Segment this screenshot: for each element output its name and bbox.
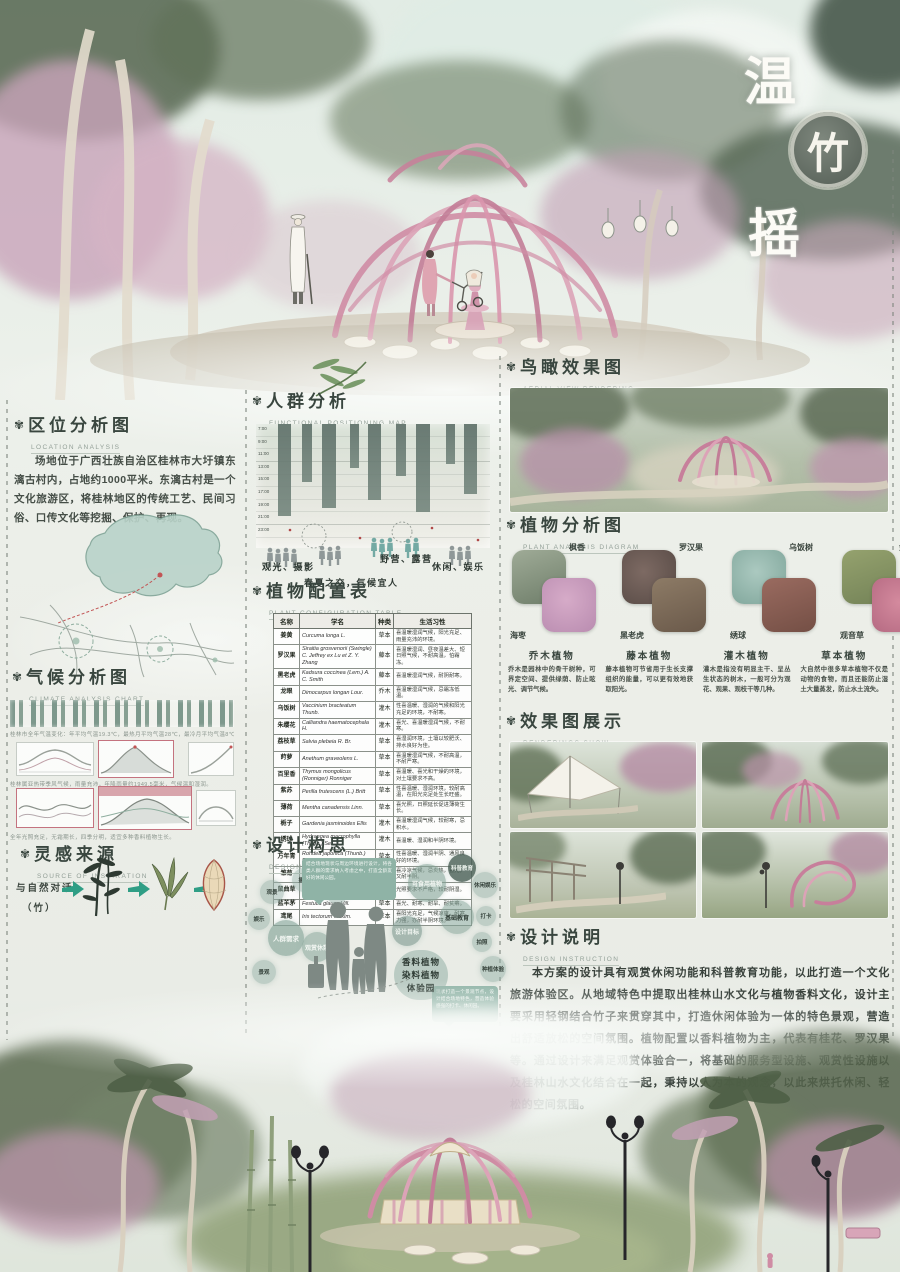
crowd-time-label: 15:00	[258, 476, 269, 489]
description-title: 设计说明	[520, 928, 604, 947]
crowd-title: 人群分析	[266, 392, 350, 411]
plant-latin-name: Siraitia grosvenorii (Swingle) C. Jeffre…	[300, 645, 376, 669]
concept-bubble: 娱乐	[248, 908, 270, 930]
crowd-time-label: 9:00	[258, 439, 269, 452]
plant-table-row: 黑老虎 Kadsura coccinea (Lem.) A. C. Smith …	[274, 668, 472, 685]
plant-category: 灌木植物 灌木是指没有明显主干、呈丛生状态的树木，一般可分为观花、观果、观枝干等…	[703, 648, 791, 694]
plant-latin-name: Perilla frutescens (L.) Britt	[300, 784, 376, 800]
plant-table-row: 龙眼 Dimocarpus longan Lour. 乔木 喜温暖湿润气候，忌霜…	[274, 685, 472, 701]
plant-photo	[872, 578, 900, 632]
concept-bubble: 种植体验	[480, 956, 506, 982]
plant-latin-name: Calliandra haematocephala H.	[300, 718, 376, 735]
street-lamp	[292, 1146, 329, 1272]
aerial-view-image	[510, 388, 888, 512]
plant-pair: 枫香 海枣	[512, 540, 600, 640]
plant-thumbnails: 枫香 海枣 罗汉果 黑老虎 乌饭树 绣球 金鸡菊 观音草	[512, 540, 900, 640]
plant-type: 草本	[376, 629, 394, 645]
plant-category-name: 乔木植物	[508, 648, 596, 662]
concept-family-silhouette	[304, 894, 434, 1004]
plant-habit: 喜湿润环境，土壤以较肥沃、排水良好为佳。	[394, 735, 472, 751]
plant-category-desc: 大自然中很多草本植物不仅是动物的食物，而且还能防止湿土大量蒸发，防止水土流失。	[801, 665, 889, 694]
plant-type: 草本	[376, 735, 394, 751]
inspiration-shell	[196, 858, 232, 914]
concept-bubble: 科普教育	[448, 854, 476, 882]
concept-bubble: 拍照	[472, 932, 492, 952]
climate-chart-precip	[98, 740, 174, 778]
plant-type: 灌木	[376, 701, 394, 718]
plant-latin-name: Anethum graveolens L.	[300, 751, 376, 767]
aerial-title: 鸟瞰效果图	[520, 358, 625, 377]
plant-habit: 性喜温暖、湿润环境，较耐高温，在阳光充足处生长旺盛。	[394, 784, 472, 800]
climate-chart-wind	[16, 788, 94, 828]
plant-table-title: 植物配置表	[266, 582, 371, 601]
plant-habit: 性喜温暖、湿润的气候和阳光充足的环境，不耐寒。	[394, 701, 472, 718]
plant-type: 乔木	[376, 685, 394, 701]
street-lamp	[812, 1156, 831, 1272]
plant-habit: 喜温暖湿润气候，阳光充足、雨量充沛的环境。	[394, 629, 472, 645]
climate-chart-bridge	[196, 790, 236, 826]
climate-chart-temp	[16, 742, 94, 776]
plant-name: 百里香	[274, 767, 300, 784]
plant-type: 藤本	[376, 668, 394, 685]
col-header-latin: 学名	[300, 614, 376, 629]
plant-name: 朱缨花	[274, 718, 300, 735]
poster-title-char-badge: 竹	[807, 120, 849, 181]
col-header-habit: 生活习性	[394, 614, 472, 629]
climate-chart-sun	[188, 742, 234, 776]
poster-title-char-top: 温	[744, 40, 796, 115]
plant-category: 草本植物 大自然中很多草本植物不仅是动物的食物，而且还能防止湿土大量蒸发，防止水…	[801, 648, 889, 694]
plant-label-top: 枫香	[569, 542, 585, 553]
plant-table-row: 姜黄 Curcuma longa L. 草本 喜温暖湿润气候，阳光充足、雨量充沛…	[274, 629, 472, 645]
plant-table-row: 朱缨花 Calliandra haematocephala H. 灌木 喜光、喜…	[274, 718, 472, 735]
hero-bottom-rendering	[0, 1020, 900, 1272]
concept-title: 设计构思	[266, 836, 350, 855]
plant-type: 灌木	[376, 718, 394, 735]
bottom-scene	[0, 1020, 900, 1272]
plant-categories: 乔木植物 乔木是园林中的骨干树种，可界定空间、提供绿荫、防止眩光、调节气候。 藤…	[508, 648, 888, 694]
plant-latin-name: Salvia plebeia R. Br.	[300, 735, 376, 751]
plant-habit: 喜温暖、湿润和半阴环境。	[394, 833, 472, 850]
section-description-header: ✾设计说明 DESIGN INSTRUCTION	[506, 928, 619, 967]
concept-bubble: 景观	[252, 960, 276, 984]
plant-name: 罗汉果	[274, 645, 300, 669]
plant-table-row: 百里香 Thymus mongolicus (Ronniger) Ronnige…	[274, 767, 472, 784]
location-title: 区位分析图	[28, 416, 133, 435]
plant-latin-name: Dimocarpus longan Lour.	[300, 685, 376, 701]
plant-habit: 喜温暖湿润气候，不耐高温，不耐严寒。	[394, 751, 472, 767]
plant-label-bottom: 观音草	[840, 630, 864, 641]
plant-category-desc: 藤本植物可节省用于生长支撑组织的能量，可以更有效地获取阳光。	[606, 665, 694, 694]
crowd-diagram: 7:009:0011:0013:0015:0017:0019:0021:0023…	[256, 424, 490, 548]
concept-bubble: 打卡	[476, 906, 496, 926]
plant-name: 龙眼	[274, 685, 300, 701]
climate-chart-humidity	[98, 786, 192, 830]
plant-name: 莳萝	[274, 751, 300, 767]
plant-name: 薄荷	[274, 800, 300, 816]
concept-bubble: 观景	[260, 880, 284, 904]
climate-title: 气候分析图	[26, 668, 131, 687]
plant-habit: 喜温暖、喜光和干燥的环境，对土壤要求不高。	[394, 767, 472, 784]
plant-latin-name: Curcuma longa L.	[300, 629, 376, 645]
plant-analysis-title: 植物分析图	[520, 516, 625, 535]
plant-habit: 喜温暖湿润气候，忌霜冻低温。	[394, 685, 472, 701]
poster-title-badge: 竹	[790, 112, 866, 188]
plant-category-desc: 乔木是园林中的骨干树种，可界定空间、提供绿荫、防止眩光、调节气候。	[508, 665, 596, 694]
crowd-activity-label: 野营、露营	[380, 552, 433, 565]
climate-barcode-strip	[10, 700, 234, 727]
flower-icon: ✾	[252, 838, 262, 852]
flower-icon: ✾	[506, 930, 516, 944]
plant-latin-name: Thymus mongolicus (Ronniger) Ronniger	[300, 767, 376, 784]
flower-icon: ✾	[12, 670, 22, 684]
plant-latin-name: Gardenia jasminoides Ellis	[300, 816, 376, 832]
street-lamp	[607, 1116, 644, 1260]
plant-name: 姜黄	[274, 629, 300, 645]
location-maps	[10, 505, 238, 680]
plant-name: 紫苏	[274, 784, 300, 800]
crowd-time-label: 17:00	[258, 489, 269, 502]
plant-category-name: 灌木植物	[703, 648, 791, 662]
column-seam-mid2	[499, 356, 501, 1036]
plant-photo	[652, 578, 706, 632]
plant-table-row: 莳萝 Anethum graveolens L. 草本 喜温暖湿润气候，不耐高温…	[274, 751, 472, 767]
plant-label-top: 罗汉果	[679, 542, 703, 553]
plant-latin-name: Vaccinium bracteatum Thunb.	[300, 701, 376, 718]
plant-table-row: 乌饭树 Vaccinium bracteatum Thunb. 灌木 性喜温暖、…	[274, 701, 472, 718]
inspiration-sublabel: （竹）	[22, 900, 57, 914]
plant-pair: 罗汉果 黑老虎	[622, 540, 710, 640]
crowd-activity-label: 休闲、娱乐	[432, 560, 485, 573]
column-seam-left	[6, 400, 8, 1040]
plant-habit: 喜温暖湿润气候，耐阴耐寒。	[394, 668, 472, 685]
plant-label-bottom: 海枣	[510, 630, 526, 641]
plant-type: 灌木	[376, 816, 394, 832]
crowd-time-label: 13:00	[258, 464, 269, 477]
plant-photo	[762, 578, 816, 632]
plant-latin-name: Kadsura coccinea (Lem.) A. C. Smith	[300, 668, 376, 685]
flower-icon: ✾	[20, 847, 30, 861]
plant-habit: 喜光、喜温暖湿润气候，不耐寒。	[394, 718, 472, 735]
flower-icon: ✾	[506, 714, 516, 728]
flower-icon: ✾	[506, 360, 516, 374]
crowd-activity-label: 观光、摄影	[262, 560, 315, 573]
plant-photo	[542, 578, 596, 632]
rendering-dome	[702, 742, 888, 828]
flower-icon: ✾	[252, 394, 262, 408]
plant-type: 草本	[376, 767, 394, 784]
plant-category-name: 草本植物	[801, 648, 889, 662]
climate-caption-top: 桂林市全年气温变化：年平均气温19.3℃，最热月平均气温28℃，最冷月平均气温8…	[10, 730, 234, 738]
plant-table-row: 薄荷 Mentha canadensis Linn. 草本 喜光照，日照延长促进…	[274, 800, 472, 816]
plant-type: 藤本	[376, 645, 394, 669]
hero-top-rendering: 温 竹 摇	[0, 0, 900, 400]
plant-habit: 喜光照，日照延长促进薄荷生长。	[394, 800, 472, 816]
col-header-name: 名称	[274, 614, 300, 629]
plant-name: 荔枝草	[274, 735, 300, 751]
crowd-time-label: 7:00	[258, 426, 269, 439]
plant-latin-name: Mentha canadensis Linn.	[300, 800, 376, 816]
plant-name: 栀子	[274, 816, 300, 832]
plant-table-row: 紫苏 Perilla frutescens (L.) Britt 草本 性喜温暖…	[274, 784, 472, 800]
hero-pavilion	[240, 130, 710, 370]
plant-table-row: 荔枝草 Salvia plebeia R. Br. 草本 喜湿润环境，土壤以较肥…	[274, 735, 472, 751]
plant-label-bottom: 黑老虎	[620, 630, 644, 641]
plant-pair: 金鸡菊 观音草	[842, 540, 900, 640]
plant-type: 草本	[376, 784, 394, 800]
figure-man	[290, 215, 312, 304]
crowd-time-label: 19:00	[258, 502, 269, 515]
plant-habit: 喜温暖湿润、昼夜温差大、短日照气候，不耐高温，怕霜冻。	[394, 645, 472, 669]
plant-table-row: 罗汉果 Siraitia grosvenorii (Swingle) C. Je…	[274, 645, 472, 669]
plant-table-row: 栀子 Gardenia jasminoides Ellis 灌木 喜温暖湿润气候…	[274, 816, 472, 832]
concept-bubble: 基础教育	[440, 900, 474, 934]
plant-type: 灌木	[376, 833, 394, 850]
plant-category: 乔木植物 乔木是园林中的骨干树种，可界定空间、提供绿荫、防止眩光、调节气候。	[508, 648, 596, 694]
design-poster: 温 竹 摇 ✾区位分析图 LOCATION ANALYSIS 场地位于广西壮族自…	[0, 0, 900, 1272]
plant-habit: 喜温暖湿润气候，较耐寒，忌积水。	[394, 816, 472, 832]
climate-caption-bottom: 全年光照充足，无霜期长，四季分明，适宜多种香料植物生长。	[10, 833, 234, 841]
flower-icon: ✾	[14, 418, 24, 432]
flower-icon: ✾	[506, 518, 516, 532]
section-location-header: ✾区位分析图 LOCATION ANALYSIS	[14, 416, 133, 455]
plant-type: 草本	[376, 751, 394, 767]
poster-title-char-bottom: 摇	[748, 192, 800, 267]
flower-icon: ✾	[252, 584, 262, 598]
plant-label-top: 乌饭树	[789, 542, 813, 553]
rendering-pergola	[510, 832, 696, 918]
rendering-ring-sculpture	[702, 832, 888, 918]
plant-type: 草本	[376, 800, 394, 816]
plant-category-name: 藤本植物	[606, 648, 694, 662]
concept-bubble: 休闲娱乐	[472, 872, 498, 898]
plant-category-desc: 灌木是指没有明显主干、呈丛生状态的树木，一般可分为观花、观果、观枝干等几种。	[703, 665, 791, 694]
plant-name: 乌饭树	[274, 701, 300, 718]
plant-name: 黑老虎	[274, 668, 300, 685]
plant-label-bottom: 绣球	[730, 630, 746, 641]
crowd-time-label: 11:00	[258, 451, 269, 464]
col-header-type: 种类	[376, 614, 394, 629]
concept-bubble: 人群需求	[268, 920, 304, 956]
plant-category: 藤本植物 藤本植物可节省用于生长支撑组织的能量，可以更有效地获取阳光。	[606, 648, 694, 694]
rendering-canopy	[510, 742, 696, 828]
plant-pair: 乌饭树 绣球	[732, 540, 820, 640]
renderings-title: 效果图展示	[520, 712, 625, 731]
